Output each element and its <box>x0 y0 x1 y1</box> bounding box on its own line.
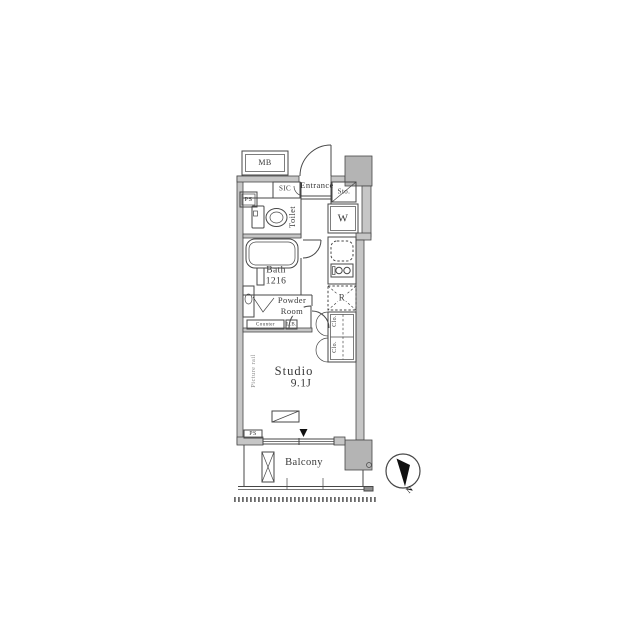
washbasin-cabinet <box>243 286 254 317</box>
ps-top-label: PS <box>244 196 252 203</box>
bath-name-label: Bath <box>266 266 286 276</box>
toilet-tank <box>252 206 264 228</box>
powder-room-label-line2: Room <box>280 307 304 316</box>
studio-size-label: 9.1J <box>291 378 311 390</box>
toilet-bath-band <box>243 234 301 238</box>
compass-needle <box>397 459 411 487</box>
toilet-door <box>303 240 321 258</box>
window-marker-triangle <box>300 429 308 437</box>
bath-folding-door <box>253 297 274 312</box>
entrance-step <box>301 196 331 199</box>
column-bottom-right <box>345 440 372 470</box>
washer-label: W <box>338 214 349 225</box>
sic-label: SIC <box>279 186 291 193</box>
storage-label: Sto. <box>338 189 351 196</box>
balcony-drain <box>364 487 373 492</box>
floor-plan-linework <box>0 0 640 640</box>
mb-label: MB <box>258 159 271 167</box>
bath-size-label: 1216 <box>266 277 287 287</box>
stove-panel <box>333 267 336 275</box>
powder-room-label-line1: Powder <box>277 296 307 305</box>
ps-bottom-label: PS <box>249 431 256 437</box>
kitchen-sink <box>331 241 353 261</box>
compass <box>386 454 420 488</box>
wall-left <box>237 176 243 444</box>
stove-burner-left <box>336 267 342 273</box>
closet-lower-label: Clo. <box>332 341 338 353</box>
sliding-window <box>263 438 334 445</box>
desk-diagonal <box>272 411 299 422</box>
washbasin <box>243 286 254 317</box>
fridge-label: R <box>338 294 346 303</box>
wall-right-jog <box>356 233 371 240</box>
picture-rail-label: Picture rail <box>251 354 258 388</box>
wall-bottom-right <box>334 437 345 445</box>
ac-unit-space <box>262 452 274 482</box>
floor-plan-canvas: MB PS SIC Entrance Sto. W Toilet Bath 12… <box>0 0 640 640</box>
toilet-fixture <box>252 206 287 228</box>
kitchen-stove <box>331 264 353 277</box>
closet-door-arc-lower <box>316 338 328 362</box>
stove-burner-right <box>344 267 350 273</box>
bathtub-inner <box>249 242 295 265</box>
closet-upper-label: Clo. <box>332 315 338 327</box>
toilet-bowl <box>266 209 287 227</box>
studio-door-arc <box>312 311 329 328</box>
entrance-door <box>300 145 331 176</box>
studio-name-label: Studio <box>275 365 314 378</box>
bathtub <box>246 239 298 268</box>
wall-right-lower <box>356 240 364 440</box>
closet-door-arc-upper <box>316 312 328 336</box>
wall-top-left <box>237 176 299 182</box>
wall-right-upper <box>362 186 371 237</box>
lavatory-box-label: L.B. <box>286 322 297 327</box>
toilet-label: Toilet <box>287 206 296 228</box>
toilet-button <box>254 211 258 216</box>
balcony-label: Balcony <box>285 458 323 469</box>
counter-label: Counter <box>256 322 275 327</box>
entrance-door-arc <box>300 145 331 176</box>
bath-counter <box>257 268 264 285</box>
entrance-label: Entrance <box>300 181 333 190</box>
bathtub-outer <box>246 239 298 268</box>
toilet-door-arc <box>303 240 321 258</box>
desk <box>272 411 299 422</box>
toilet-bowl-inner <box>270 212 283 223</box>
